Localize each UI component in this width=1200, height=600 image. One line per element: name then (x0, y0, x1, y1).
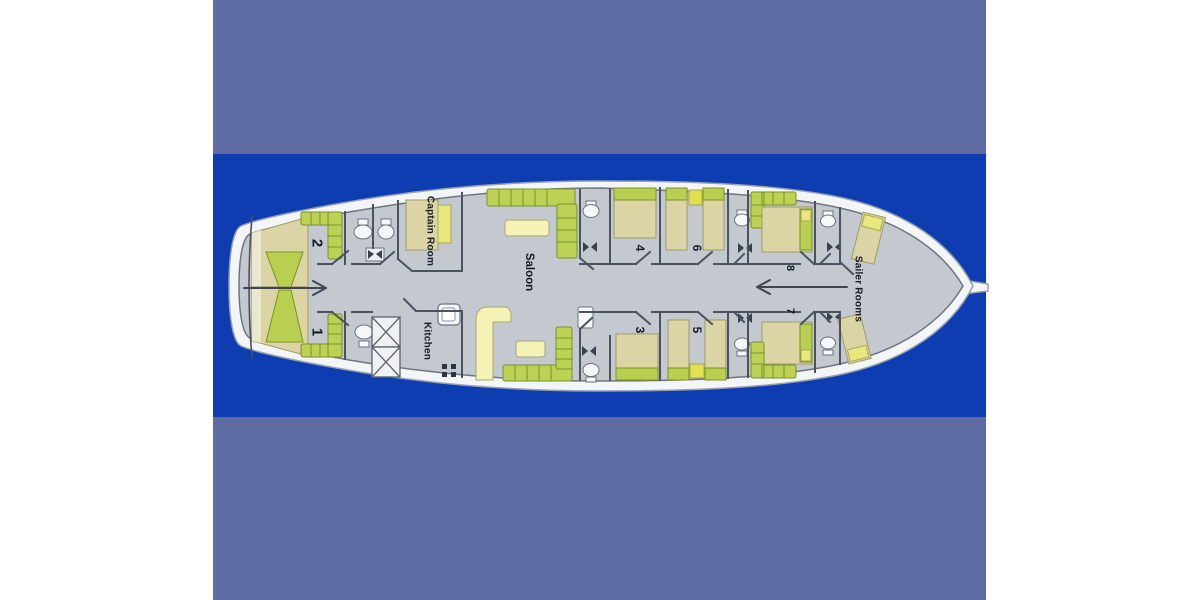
companionway-stairs (372, 317, 400, 377)
saloon-sofa-top (487, 189, 575, 206)
cabin-3-bed (616, 334, 658, 380)
nightstand (690, 364, 704, 378)
label-cabin-4: 4 (633, 245, 647, 252)
deck-plan-figure: 2 1 Captain Room Kitchen Saloon 4 6 3 5 … (0, 0, 1200, 600)
deck-plan-canvas: 2 1 Captain Room Kitchen Saloon 4 6 3 5 … (0, 0, 1200, 600)
saloon-table-top (505, 220, 549, 236)
label-kitchen: Kitchen (422, 322, 433, 360)
stern-beds (252, 217, 308, 356)
toilet (821, 215, 836, 227)
sink (378, 225, 394, 239)
label-cabin-7: 7 (784, 308, 796, 314)
nightstand (689, 190, 702, 205)
label-saloon: Saloon (523, 253, 535, 291)
label-cabin-2: 2 (309, 239, 326, 247)
label-cabin-5: 5 (690, 327, 704, 334)
label-cabin-3: 3 (633, 327, 647, 334)
toilet-tank (381, 219, 391, 225)
cabin-4-bed (614, 188, 656, 238)
label-captain-room: Captain Room (425, 196, 436, 266)
toilet-tank (359, 341, 369, 347)
label-cabin-1: 1 (309, 328, 326, 336)
toilet-tank (358, 219, 368, 225)
label-sailer-rooms: Sailer Rooms (853, 256, 864, 323)
toilet (583, 205, 599, 218)
toilet (355, 325, 373, 339)
toilet (821, 337, 836, 349)
label-cabin-8: 8 (784, 265, 796, 271)
saloon-table-bottom (516, 341, 545, 357)
toilet (354, 225, 372, 239)
label-cabin-6: 6 (690, 245, 704, 252)
toilet (583, 364, 599, 377)
hull (229, 181, 988, 391)
captain-pillow (438, 205, 451, 243)
